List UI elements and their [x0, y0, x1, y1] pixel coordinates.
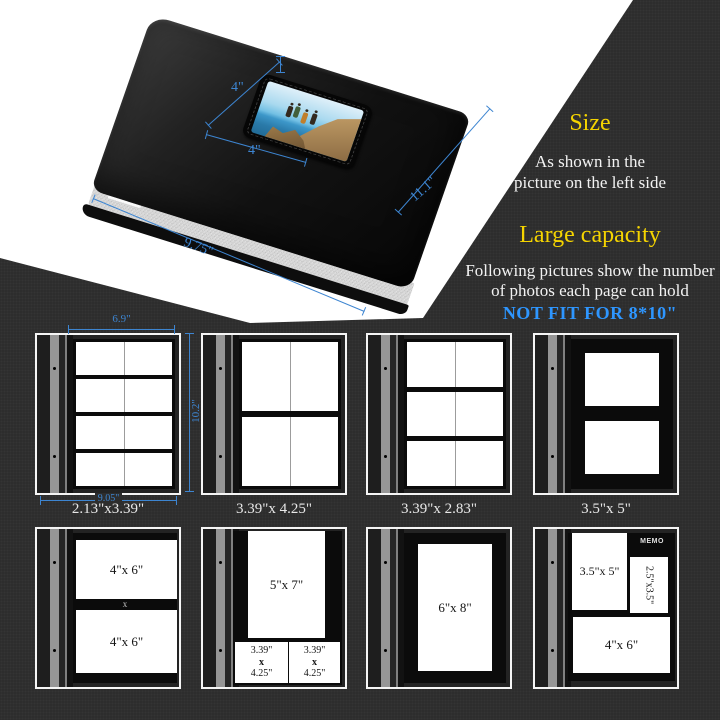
binding-hole: [551, 561, 554, 564]
photo-slot-row: [407, 342, 503, 387]
photo-person: [292, 106, 301, 118]
page-diagram-two-4x6: 4"x 6" x 4"x 6": [35, 527, 181, 689]
page-mat: [239, 339, 341, 489]
photo-slot-row: [76, 379, 172, 412]
capacity-title: Large capacity: [420, 222, 720, 249]
photo-slot: 3.39" x 4.25": [235, 642, 288, 683]
photo-slot-row: [407, 441, 503, 486]
photo-slot: 3.5"x 5": [572, 533, 627, 610]
photo-slot: 5"x 7": [248, 531, 325, 638]
photo-slot-row: [76, 453, 172, 486]
page-binding: [535, 335, 571, 493]
slot-label-line: 4.25": [304, 668, 326, 680]
binding-hole: [53, 455, 56, 458]
slot-label-line: 3.39": [251, 645, 273, 657]
page-mat: [571, 339, 673, 489]
page-binding: [37, 529, 73, 687]
photo-slot-row: [76, 416, 172, 449]
slot-divider-x: x: [73, 599, 177, 609]
page-binding: [368, 335, 404, 493]
size-title: Size: [420, 110, 720, 137]
photo-slot-row: [407, 392, 503, 437]
not-fit-warning: NOT FIT FOR 8*10": [420, 303, 720, 324]
binding-hole: [219, 455, 222, 458]
page-binding: [368, 529, 404, 687]
page-mat: 3.5"x 5" MEMO 2.5"x3.5" 4"x 6": [568, 533, 675, 681]
page-diagram-4-slots: [201, 333, 347, 495]
window-extension-tick: [280, 56, 281, 73]
slot-label-line: 4.25": [251, 668, 273, 680]
photo-slot-row: [242, 417, 338, 486]
photo-slot: 6"x 8": [418, 544, 492, 671]
binding-hole: [219, 561, 222, 564]
photo-slot: 4"x 6": [76, 610, 177, 673]
binding-hole: [384, 561, 387, 564]
binding-hole: [384, 649, 387, 652]
binding-hole: [219, 367, 222, 370]
page-diagram-5x7-combo: 5"x 7" 3.39" x 4.25" 3.39" x 4.25": [201, 527, 347, 689]
binding-hole: [551, 649, 554, 652]
page-binding: [535, 529, 571, 687]
binding-hole: [53, 561, 56, 564]
page-binding: [203, 335, 239, 493]
diagram1-caption: 2.13"x3.39": [35, 501, 181, 518]
page-mat: [404, 339, 506, 489]
window-height-dim-label: 4": [231, 80, 244, 96]
slot-label-line: x: [312, 657, 317, 669]
cover-photo: [251, 81, 365, 162]
page-diagram-two-3x5: [533, 333, 679, 495]
photo-slot: 4"x 6": [76, 540, 177, 599]
binding-hole: [219, 649, 222, 652]
photo-slot: 4"x 6": [573, 617, 670, 673]
page-diagram-6x8: 6"x 8": [366, 527, 512, 689]
slot-label-line: 3.39": [304, 645, 326, 657]
page-mat: 6"x 8": [404, 533, 506, 683]
page-binding: [37, 335, 73, 493]
slot-label-vertical: 2.5"x3.5": [644, 566, 655, 604]
photo-slot-row: [76, 342, 172, 375]
photo-slot: 3.39" x 4.25": [289, 642, 340, 683]
size-description-line2: picture on the left side: [420, 173, 720, 193]
photo-person: [299, 112, 308, 124]
capacity-description-line2: of photos each page can hold: [420, 281, 720, 301]
diagram2-caption: 3.39"x 4.25": [201, 501, 347, 518]
page-mat: 4"x 6" x 4"x 6": [73, 533, 177, 683]
diagram1-top-dim-line: [68, 329, 175, 330]
photo-rocks-right: [292, 102, 363, 162]
binding-hole: [384, 455, 387, 458]
page-mat: 5"x 7" 3.39" x 4.25" 3.39" x 4.25": [233, 531, 342, 685]
product-infographic: 4" 4" 9.75" 11.1" Size As shown in the p…: [0, 0, 720, 720]
diagram3-caption: 3.39"x 2.83": [366, 501, 512, 518]
page-diagram-6-slots: [366, 333, 512, 495]
photo-slot: [585, 421, 659, 474]
size-description-line1: As shown in the: [420, 152, 720, 172]
photo-slot-row: [242, 342, 338, 411]
page-diagram-8-slots: [35, 333, 181, 495]
diagram1-top-dim-label: 6.9": [68, 313, 175, 325]
photo-slot: 2.5"x3.5": [630, 557, 668, 613]
page-diagram-memo-combo: 3.5"x 5" MEMO 2.5"x3.5" 4"x 6": [533, 527, 679, 689]
binding-hole: [551, 455, 554, 458]
cover-photo-window: [241, 73, 374, 171]
binding-hole: [551, 367, 554, 370]
binding-hole: [384, 367, 387, 370]
slot-label-line: x: [259, 657, 264, 669]
binding-hole: [53, 367, 56, 370]
diagram4-caption: 3.5"x 5": [533, 501, 679, 518]
capacity-description-line1: Following pictures show the number: [420, 261, 720, 281]
photo-slot: [585, 353, 659, 406]
memo-label: MEMO: [632, 538, 672, 545]
page-mat: [73, 339, 175, 489]
binding-hole: [53, 649, 56, 652]
photo-person: [310, 114, 319, 126]
window-width-dim-label: 4": [248, 143, 261, 159]
